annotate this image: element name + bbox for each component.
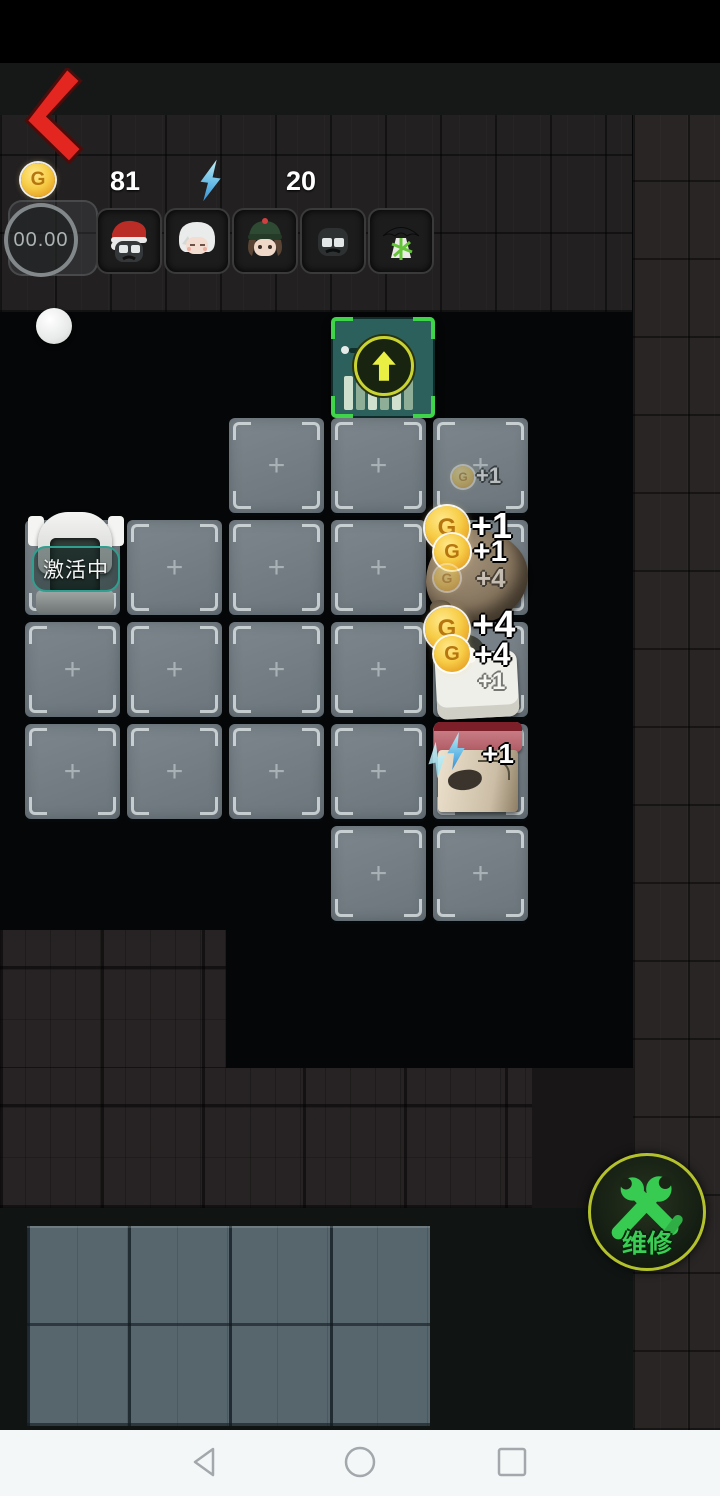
reward-coin-icon: G [434,534,470,570]
reward-coin-icon: G [434,636,470,672]
grid-cell[interactable]: + [25,622,120,717]
energy-value: 20 [286,166,316,197]
grid-cell[interactable]: + [127,724,222,819]
dark-goggles-avatar [306,214,360,268]
add-slot-plus: + [331,724,426,819]
grid-cell[interactable]: + [229,724,324,819]
grid-cell[interactable]: + [127,622,222,717]
floor-tiles [27,1226,430,1426]
reward-coin-icon: G [434,565,460,591]
reward-value: +1 [476,463,501,489]
add-slot-plus: + [229,520,324,615]
wall-tiles-left-patch [0,930,226,1070]
avatar-slot-1[interactable] [96,208,162,274]
add-slot-plus: + [229,622,324,717]
add-slot-plus: + [331,520,426,615]
android-navbar [0,1430,720,1496]
add-slot-plus: + [331,826,426,921]
add-slot-plus: + [229,724,324,819]
green-beanie-avatar [238,214,292,268]
upgrade-arrow-icon [354,336,414,396]
add-slot-plus: + [25,622,120,717]
wall-band [0,63,720,115]
game-screen: G 81 20 00.00 [0,0,720,1496]
grid-cell[interactable]: + [331,622,426,717]
nav-recents-icon[interactable] [495,1445,529,1479]
add-slot-plus: + [127,724,222,819]
avatar-slot-2[interactable] [164,208,230,274]
reward-coin-icon: G [452,466,474,488]
grid-cell[interactable]: + [25,724,120,819]
add-slot-plus: + [127,520,222,615]
grid-cell[interactable]: + [229,418,324,513]
activation-label: 激活中 [43,554,109,584]
wall-tiles-band [0,1068,532,1208]
grid-cell[interactable]: + [331,520,426,615]
grid-cell[interactable]: + [331,826,426,921]
reward-value: +1 [478,668,505,696]
white-hair-avatar [170,214,224,268]
grid-cell[interactable]: + [433,826,528,921]
add-slot-plus: + [433,826,528,921]
avatar-slot-4[interactable] [300,208,366,274]
repair-button[interactable]: 维修 [588,1153,706,1271]
gold-coin-icon: G [21,163,55,197]
nav-home-icon[interactable] [343,1445,377,1479]
umbrella-avatar [374,214,428,268]
battery-lid-stripe [434,722,522,731]
nav-back-icon[interactable] [190,1445,224,1479]
avatar-slot-3[interactable] [232,208,298,274]
corner-bracket [413,317,435,339]
grid-cell[interactable]: + [229,520,324,615]
add-slot-plus: + [25,724,120,819]
add-slot-plus: + [229,418,324,513]
reward-value: +1 [482,738,514,770]
timer-display: 00.00 [4,203,78,277]
grid-cell[interactable]: + [331,724,426,819]
reward-value: +4 [476,563,506,594]
santa-goggles-avatar [102,214,156,268]
coins-value: 81 [110,166,140,197]
back-button[interactable] [20,68,84,164]
grid-cell[interactable]: + [229,622,324,717]
white-ball-token[interactable] [36,308,72,344]
add-slot-plus: + [331,418,426,513]
station-indicator [341,346,349,354]
grid-cell[interactable]: + [331,418,426,513]
add-slot-plus: + [127,622,222,717]
corner-bracket [331,317,353,339]
repair-label: 维修 [591,1224,703,1260]
grid-cell[interactable]: + [127,520,222,615]
timer-value: 00.00 [13,229,68,252]
status-bar [0,0,720,63]
upgrade-station[interactable] [331,317,435,418]
avatar-slot-5[interactable] [368,208,434,274]
add-slot-plus: + [331,622,426,717]
activation-badge: 激活中 [32,546,120,592]
machine-base [36,590,114,614]
battery-box-item[interactable] [432,720,528,820]
